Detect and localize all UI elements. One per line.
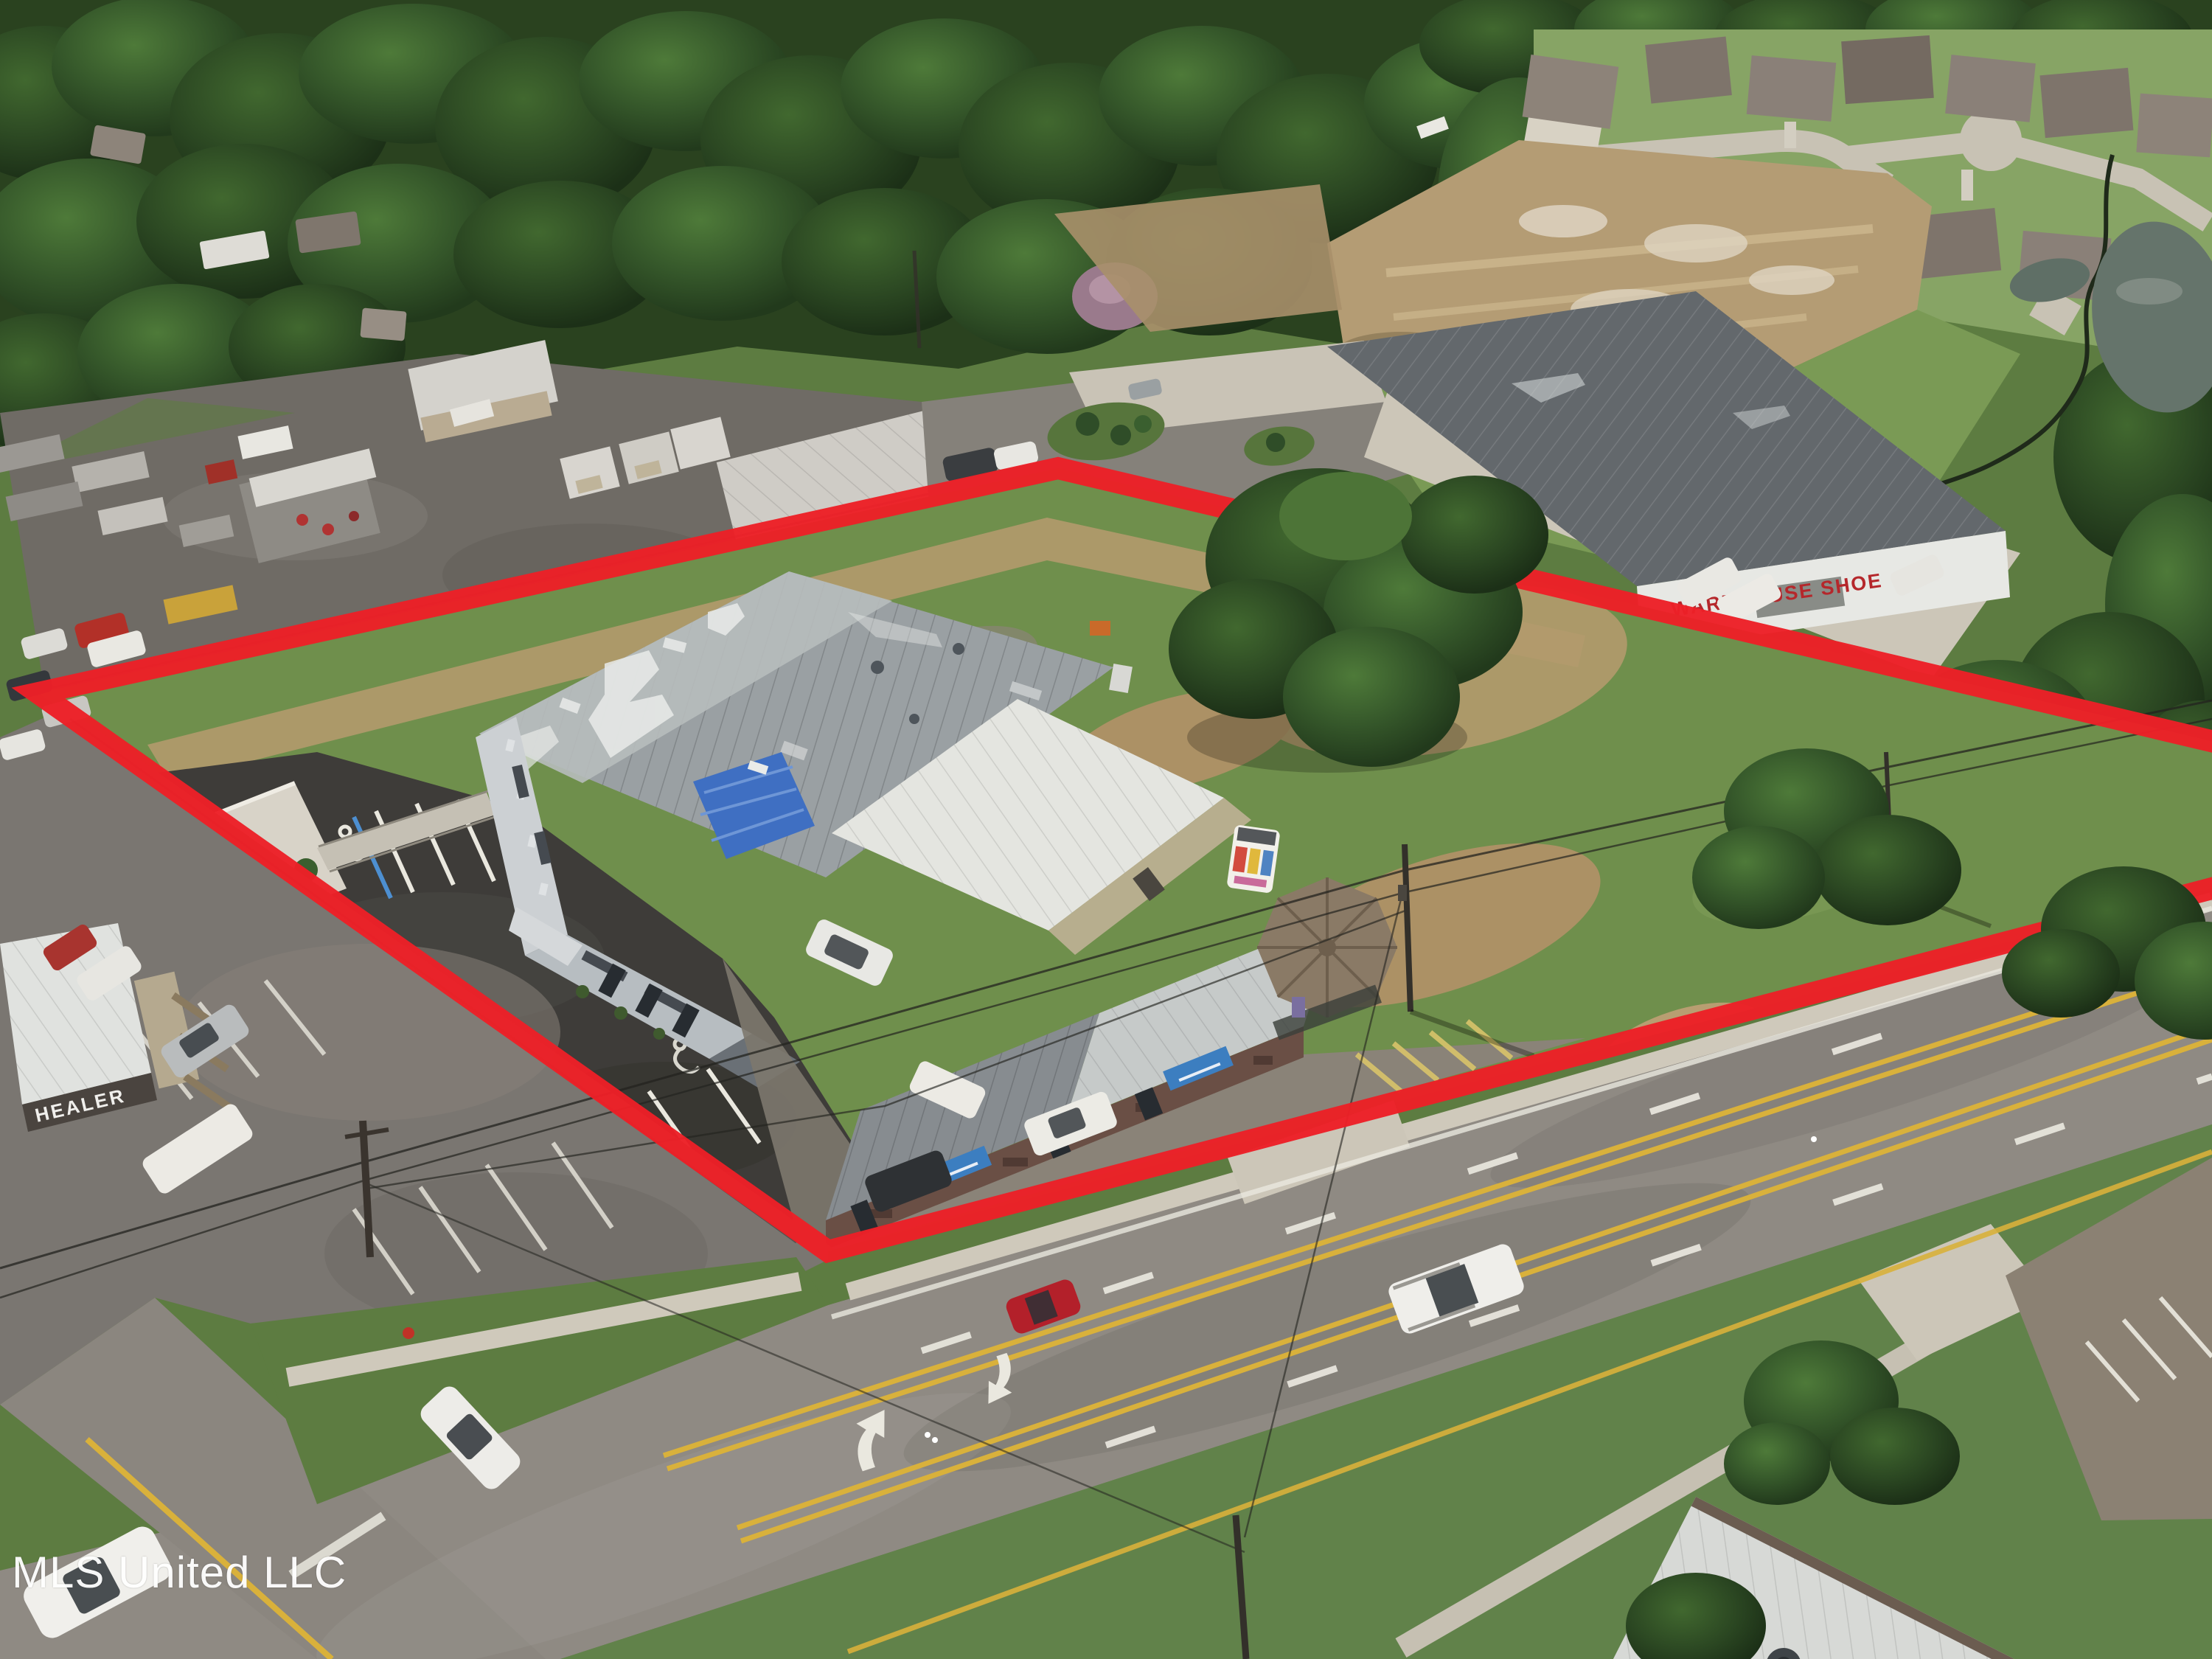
ice-cream-truck — [1226, 824, 1280, 894]
orange-pallets — [1090, 621, 1110, 636]
watermark: MLS United LLC — [12, 1547, 347, 1598]
banner — [1292, 997, 1305, 1018]
aerial-photo: WAREHOUSE SHOE — [0, 0, 2212, 1659]
fire-hydrant — [403, 1327, 414, 1339]
house-roof — [360, 307, 406, 341]
aerial-photo-canvas: WAREHOUSE SHOE — [0, 0, 2212, 1659]
